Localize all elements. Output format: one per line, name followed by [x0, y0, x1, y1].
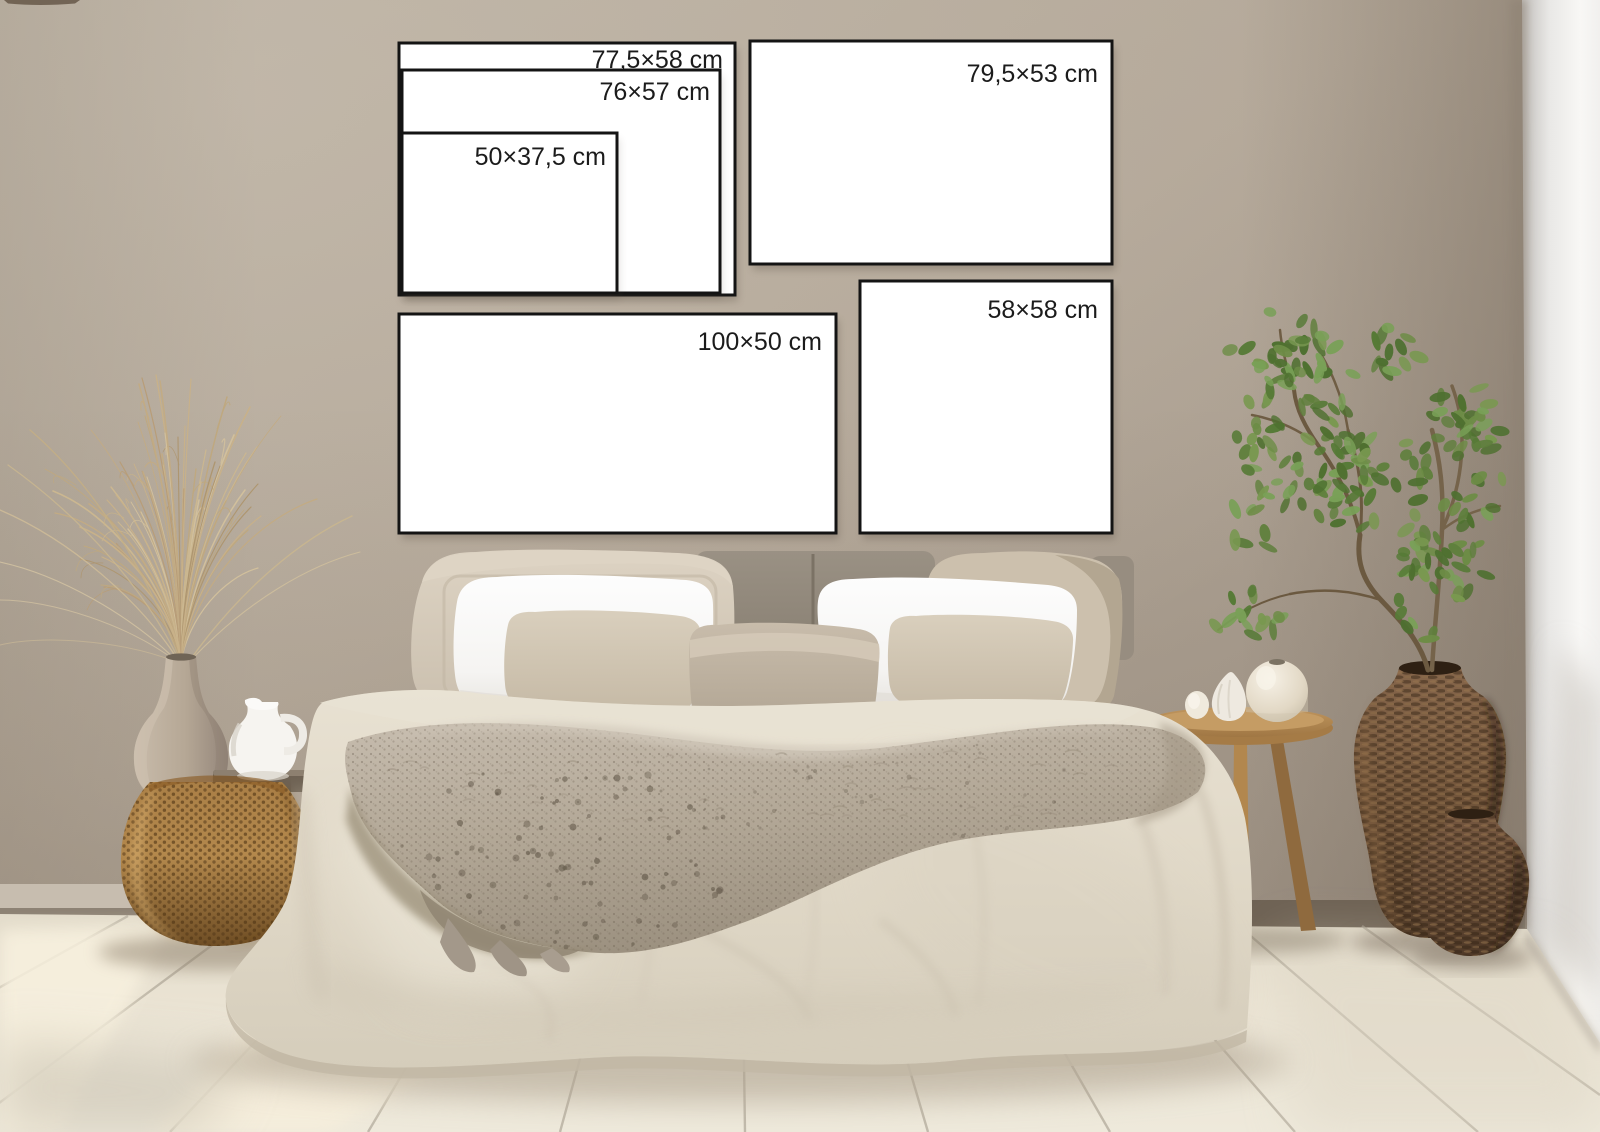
svg-text:79,5×53 cm: 79,5×53 cm — [967, 60, 1098, 88]
svg-text:100×50 cm: 100×50 cm — [698, 328, 822, 356]
svg-text:50×37,5 cm: 50×37,5 cm — [475, 143, 606, 171]
svg-text:58×58 cm: 58×58 cm — [988, 296, 1099, 324]
svg-text:76×57 cm: 76×57 cm — [600, 78, 711, 106]
